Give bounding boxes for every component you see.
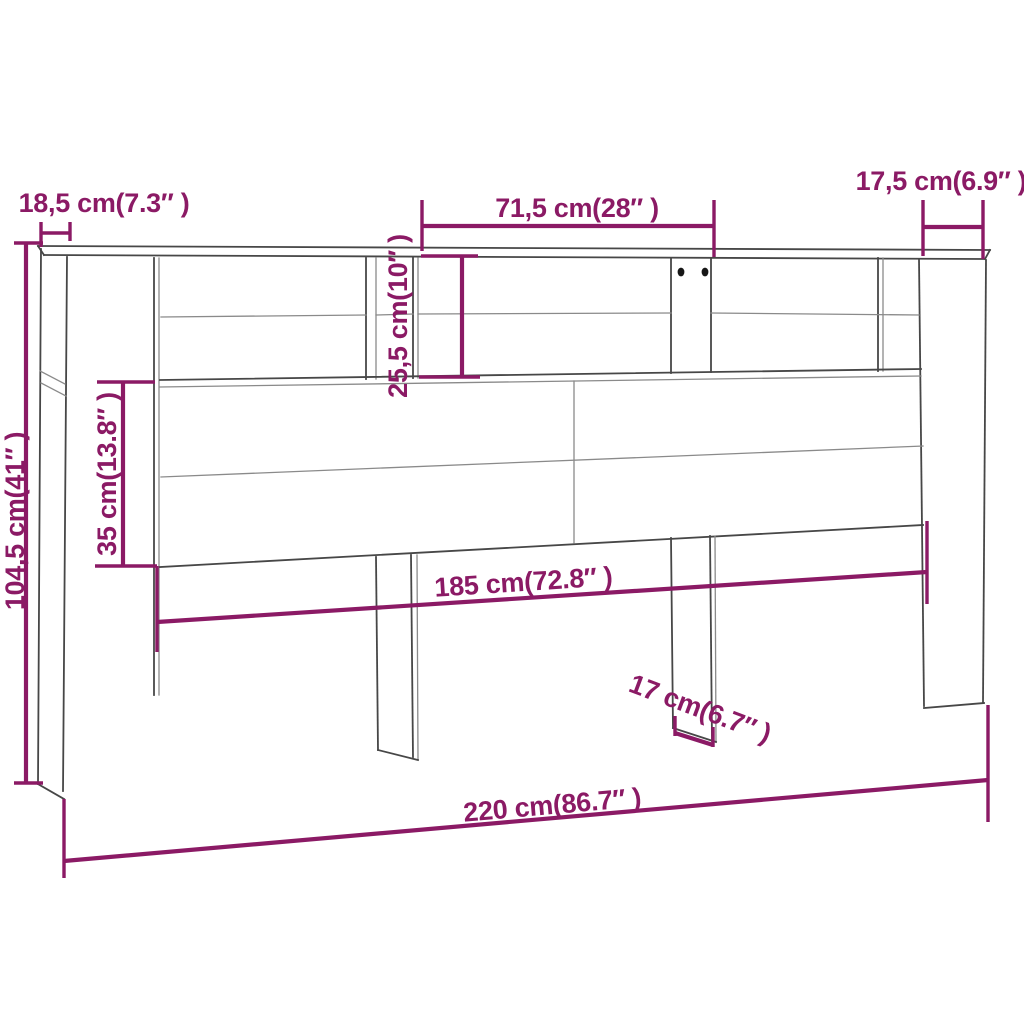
dim-panel-height: 35 cm(13.8″ ) — [92, 382, 157, 566]
left-panel-inner-edge — [63, 257, 67, 791]
main-panels — [160, 381, 923, 567]
left-panel-shelf-edge-2 — [41, 383, 66, 396]
dim-overall-width: 220 cm(86.7″ ) — [64, 705, 988, 878]
right-panel-bottom-edge — [924, 703, 984, 708]
leg-left-back-edge-2 — [417, 555, 418, 759]
dim-top-left-width: 18,5 cm(7.3″ ) — [19, 188, 190, 247]
top-board-top-edge — [38, 246, 990, 250]
dimension-diagram-page: 18,5 cm(7.3″ ) 104,5 cm(41″ ) 71,5 cm(28… — [0, 0, 1024, 1024]
right-panel-inner-edge — [919, 259, 924, 706]
dim-label-panel-height: 35 cm(13.8″ ) — [92, 392, 122, 556]
dim-label-overall-width: 220 cm(86.7″ ) — [462, 782, 642, 827]
shelf-back-line-4 — [711, 313, 919, 315]
screw-hole-left — [678, 268, 685, 277]
main-panel-mid-seam — [161, 446, 923, 477]
dim-label-shelf-height: 25,5 cm(10″ ) — [383, 234, 413, 398]
left-panel-bottom-edge — [38, 784, 64, 799]
main-panel-bottom-edge — [160, 525, 923, 567]
left-side-panel — [38, 249, 67, 799]
dim-label-top-right-depth: 17,5 cm(6.9″ ) — [856, 166, 1024, 196]
leg-left-bottom-edge — [378, 750, 418, 760]
leg-left-back-edge — [411, 555, 413, 757]
left-panel-outer-edge — [38, 249, 41, 784]
leg-left-front-edge — [376, 557, 378, 750]
shelf-partitions — [154, 258, 883, 695]
shelf-back-line-3 — [418, 313, 671, 314]
dim-shelf-height: 25,5 cm(10″ ) — [383, 234, 480, 398]
top-board-right-cap — [985, 250, 990, 259]
dim-inner-width: 185 cm(72.8″ ) — [157, 521, 927, 652]
dim-label-top-left-width: 18,5 cm(7.3″ ) — [19, 188, 190, 218]
right-side-panel — [919, 259, 986, 708]
shelf-bottom-board — [160, 369, 921, 387]
dim-label-overall-height: 104,5 cm(41″ ) — [0, 432, 30, 610]
top-board — [38, 246, 990, 259]
support-leg-left — [376, 555, 418, 760]
furniture-outline — [38, 246, 990, 799]
left-panel-shelf-edge-1 — [40, 371, 65, 384]
dim-label-inner-width: 185 cm(72.8″ ) — [433, 561, 613, 602]
dim-overall-height: 104,5 cm(41″ ) — [0, 243, 43, 783]
shelf-back-lines — [161, 313, 919, 317]
top-board-bottom-edge — [44, 255, 984, 259]
dim-label-top-center-width: 71,5 cm(28″ ) — [495, 193, 659, 223]
dim-top-right-depth: 17,5 cm(6.9″ ) — [856, 166, 1024, 259]
screw-hole-right — [702, 268, 709, 277]
shelf-back-line-1 — [161, 315, 366, 317]
shelf-bottom-top-edge — [160, 369, 921, 380]
headboard-dimension-diagram: 18,5 cm(7.3″ ) 104,5 cm(41″ ) 71,5 cm(28… — [0, 0, 1024, 1024]
right-panel-outer-edge — [983, 260, 986, 702]
